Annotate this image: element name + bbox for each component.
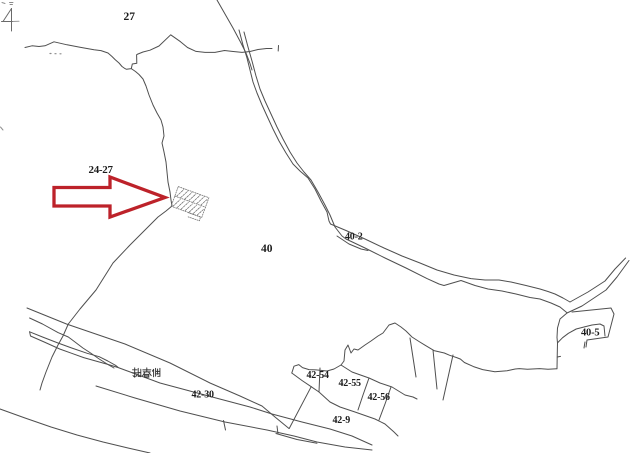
- svg-text:40-5: 40-5: [581, 328, 599, 339]
- svg-text:24-27: 24-27: [89, 164, 114, 176]
- svg-text:40-2: 40-2: [345, 232, 363, 243]
- svg-text:27: 27: [124, 11, 136, 23]
- svg-text:42-55: 42-55: [339, 378, 362, 389]
- svg-text:42-54: 42-54: [307, 370, 330, 381]
- svg-text:40: 40: [261, 243, 273, 255]
- svg-text:42-9: 42-9: [333, 415, 351, 426]
- svg-text:42-56: 42-56: [368, 392, 391, 403]
- svg-text:42-30: 42-30: [192, 390, 215, 401]
